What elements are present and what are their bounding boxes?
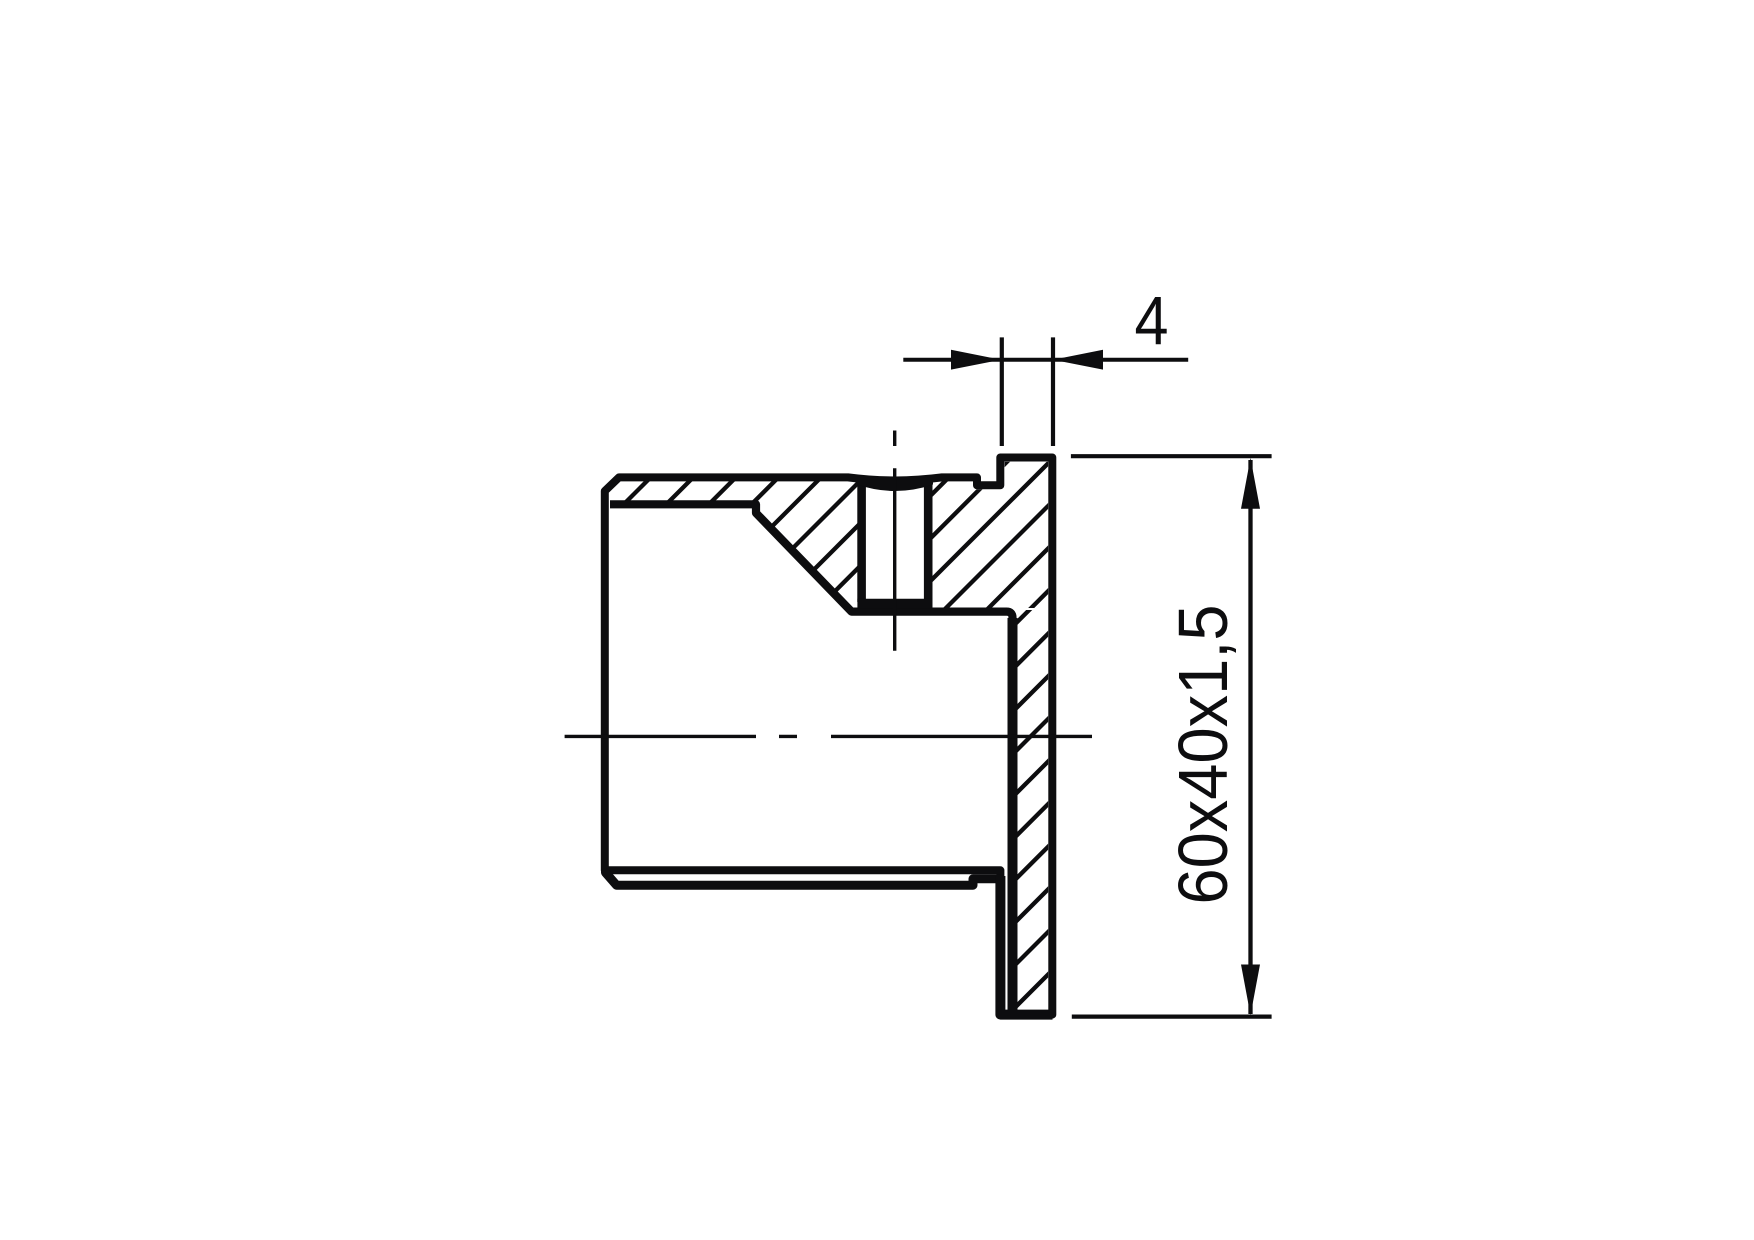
svg-text:60x40x1,5: 60x40x1,5 xyxy=(1164,605,1242,905)
svg-text:4: 4 xyxy=(1135,282,1169,359)
